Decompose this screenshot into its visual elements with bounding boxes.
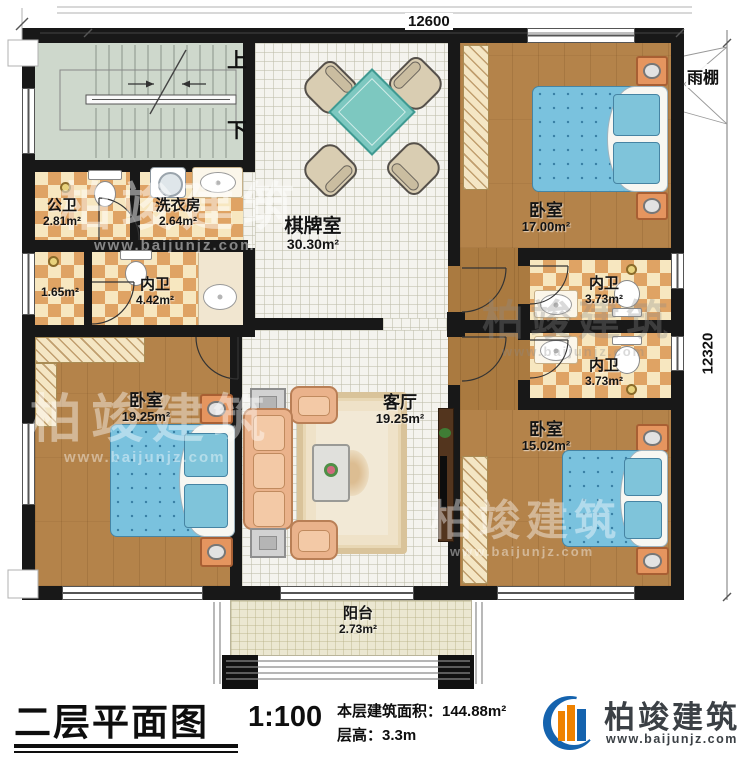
pillow <box>184 484 228 528</box>
bath2-sink <box>540 340 572 361</box>
room-name: 内卫 <box>140 277 170 294</box>
balcony-door <box>280 586 414 600</box>
room-area: 30.30m² <box>287 237 339 253</box>
room-name: 内卫 <box>589 358 619 375</box>
room-label-bath2: 内卫 3.73m² <box>585 358 623 388</box>
room-area: 15.02m² <box>522 439 570 454</box>
logo-bar-blue <box>577 709 586 741</box>
room-name: 阳台 <box>343 606 373 623</box>
bath1-sink <box>540 294 572 315</box>
nightstand-br-1 <box>636 424 669 452</box>
sofa-cushion <box>253 491 285 527</box>
armchair-bottom <box>290 520 338 560</box>
nightstand-tr-2 <box>636 192 668 220</box>
room-label-public-bath: 公卫 2.81m² <box>43 198 81 228</box>
bed-bl <box>110 424 235 537</box>
corridor-lower-floor <box>460 333 518 410</box>
nightstand-bl-1 <box>200 394 233 424</box>
title-underline-1 <box>14 744 238 748</box>
wall-ensuite-gameroom <box>243 248 255 337</box>
wall-gameroom-living <box>255 318 383 330</box>
room-area: 2.73m² <box>339 623 377 636</box>
door-gap-4 <box>518 340 530 380</box>
nightstand-tr-1 <box>636 56 668 86</box>
balcony-column-left <box>222 655 258 689</box>
wall-gameroom-east-upper <box>448 43 460 266</box>
stairs-up-label: 上 <box>227 44 247 73</box>
room-label-laundry: 洗衣房 2.64m² <box>155 198 200 228</box>
door-gap-3 <box>518 266 530 304</box>
wardrobe-bedroom-bl-top <box>35 337 145 363</box>
stairwell-floor <box>35 43 243 160</box>
side-table-bottom <box>250 528 286 558</box>
bed-br <box>562 450 668 547</box>
nightstand-br-2 <box>636 547 669 575</box>
room-area: 3.73m² <box>585 375 623 388</box>
window-bath1 <box>671 253 684 289</box>
room-area: 4.42m² <box>136 294 174 307</box>
main-sofa <box>243 408 293 530</box>
ceiling-lamp-bath1 <box>626 264 637 275</box>
room-area: 2.64m² <box>159 215 197 228</box>
sofa-cushion <box>253 415 285 451</box>
drawing-title: 二层平面图 <box>14 692 209 746</box>
nightstand-bl-2 <box>200 537 233 567</box>
window-bedroom-tr <box>527 28 635 43</box>
pillow <box>624 501 661 539</box>
wall-h2b <box>518 380 530 398</box>
ensuite-sink <box>203 284 237 310</box>
pillow <box>613 142 661 184</box>
dimension-top: 12600 <box>405 13 453 30</box>
title-block: 二层平面图 1:100 本层建筑面积：144.88m² 层高：3.3m 柏竣建筑… <box>0 690 750 763</box>
plant <box>439 428 451 438</box>
wall-bedroomtr-bath1 <box>518 248 684 260</box>
room-area: 1.65m² <box>41 286 79 299</box>
canopy-label: 雨棚 <box>686 64 720 88</box>
room-name: 棋牌室 <box>284 216 341 237</box>
room-area: 17.00m² <box>522 220 570 235</box>
room-label-game-room: 棋牌室 30.30m² <box>284 216 341 253</box>
opening-floor <box>383 318 448 330</box>
room-area: 19.25m² <box>122 410 170 425</box>
bed-tr <box>532 86 668 192</box>
room-area: 3.73m² <box>585 293 623 306</box>
wardrobe-bedroom-br <box>462 456 488 584</box>
floorplan-canvas: 柏竣建筑 www.baijunjz.com 柏竣建筑 www.baijunjz.… <box>0 0 750 763</box>
balcony-column-right <box>438 655 474 689</box>
room-label-bedroom-br: 卧室 15.02m² <box>522 420 570 454</box>
toilet-tank-public <box>88 170 122 180</box>
bath2-toilet-tank <box>612 336 642 345</box>
wall-h1b <box>518 304 530 320</box>
room-name: 卧室 <box>529 201 563 220</box>
ceiling-lamp-public-bath <box>60 182 71 193</box>
wall-bath2-bedroombr <box>518 398 684 410</box>
sofa-cushion <box>253 453 285 489</box>
armchair-cushion <box>298 530 330 552</box>
armchair-cushion <box>298 396 330 416</box>
wall-bath-bedroom <box>22 325 255 337</box>
room-name: 卧室 <box>129 391 163 410</box>
company-website: www.baijunjz.com <box>606 732 738 746</box>
threshold-floor <box>243 172 255 248</box>
wall-h2a <box>518 333 530 340</box>
toilet-bowl-public <box>94 181 116 207</box>
room-area: 19.25m² <box>376 412 424 427</box>
bath1-toilet-tank <box>612 308 642 317</box>
logo-bar-orange-2 <box>567 705 575 741</box>
window-stairwell <box>22 88 35 154</box>
room-label-balcony: 阳台 2.73m² <box>339 606 377 636</box>
pillow <box>613 94 661 136</box>
floor-area-text: 本层建筑面积：144.88m² <box>337 700 506 721</box>
ceiling-lamp-closet <box>48 256 59 267</box>
window-bedroom-br-south <box>497 586 635 600</box>
room-name: 洗衣房 <box>155 198 200 215</box>
dimension-right: 12320 <box>699 330 716 378</box>
coffee-table <box>312 444 350 502</box>
wall-bath1-bath2 <box>460 320 684 333</box>
room-label-living-room: 客厅 19.25m² <box>376 393 424 427</box>
wall-bath-laundry <box>130 172 140 240</box>
armchair-top <box>290 386 338 424</box>
laundry-sink <box>200 172 236 193</box>
window-closet <box>22 253 35 315</box>
room-name: 卧室 <box>529 420 563 439</box>
room-label-closet: 1.65m² <box>41 286 79 299</box>
window-bedroom-bl <box>22 423 35 505</box>
room-label-ensuite-bath: 内卫 4.42m² <box>136 277 174 307</box>
tv <box>440 456 447 508</box>
window-bedroom-bl-south <box>62 586 203 600</box>
floor-height-text: 层高：3.3m <box>337 724 416 745</box>
title-underline-2 <box>14 751 238 753</box>
room-area: 2.81m² <box>43 215 81 228</box>
door-gap-1 <box>448 266 460 312</box>
pillow <box>624 458 661 496</box>
company-name: 柏竣建筑 <box>604 692 740 737</box>
pillow <box>184 433 228 477</box>
room-label-bedroom-bl: 卧室 19.25m² <box>122 391 170 425</box>
logo-bar-orange-1 <box>558 711 565 741</box>
washing-machine <box>150 167 186 198</box>
wardrobe-bedroom-bl-left <box>35 363 57 427</box>
room-label-bedroom-tr: 卧室 17.00m² <box>522 201 570 235</box>
company-logo-icon <box>543 696 599 752</box>
room-name: 公卫 <box>47 198 77 215</box>
wall-right <box>671 43 684 586</box>
room-name: 内卫 <box>589 276 619 293</box>
wardrobe-bedroom-tr <box>463 45 489 190</box>
window-bath2 <box>671 336 684 371</box>
wall-h1a <box>518 260 530 266</box>
toilet-tank-ensuite <box>120 250 152 260</box>
wall-closet-ensuite <box>84 252 92 325</box>
drawing-scale: 1:100 <box>248 701 322 734</box>
corridor-upper-floor <box>460 248 518 320</box>
room-label-bath1: 内卫 3.73m² <box>585 276 623 306</box>
room-name: 客厅 <box>383 393 417 412</box>
ceiling-lamp-bath2 <box>626 384 637 395</box>
stairs-down-label: 下 <box>227 114 247 143</box>
door-gap-2 <box>448 337 460 385</box>
